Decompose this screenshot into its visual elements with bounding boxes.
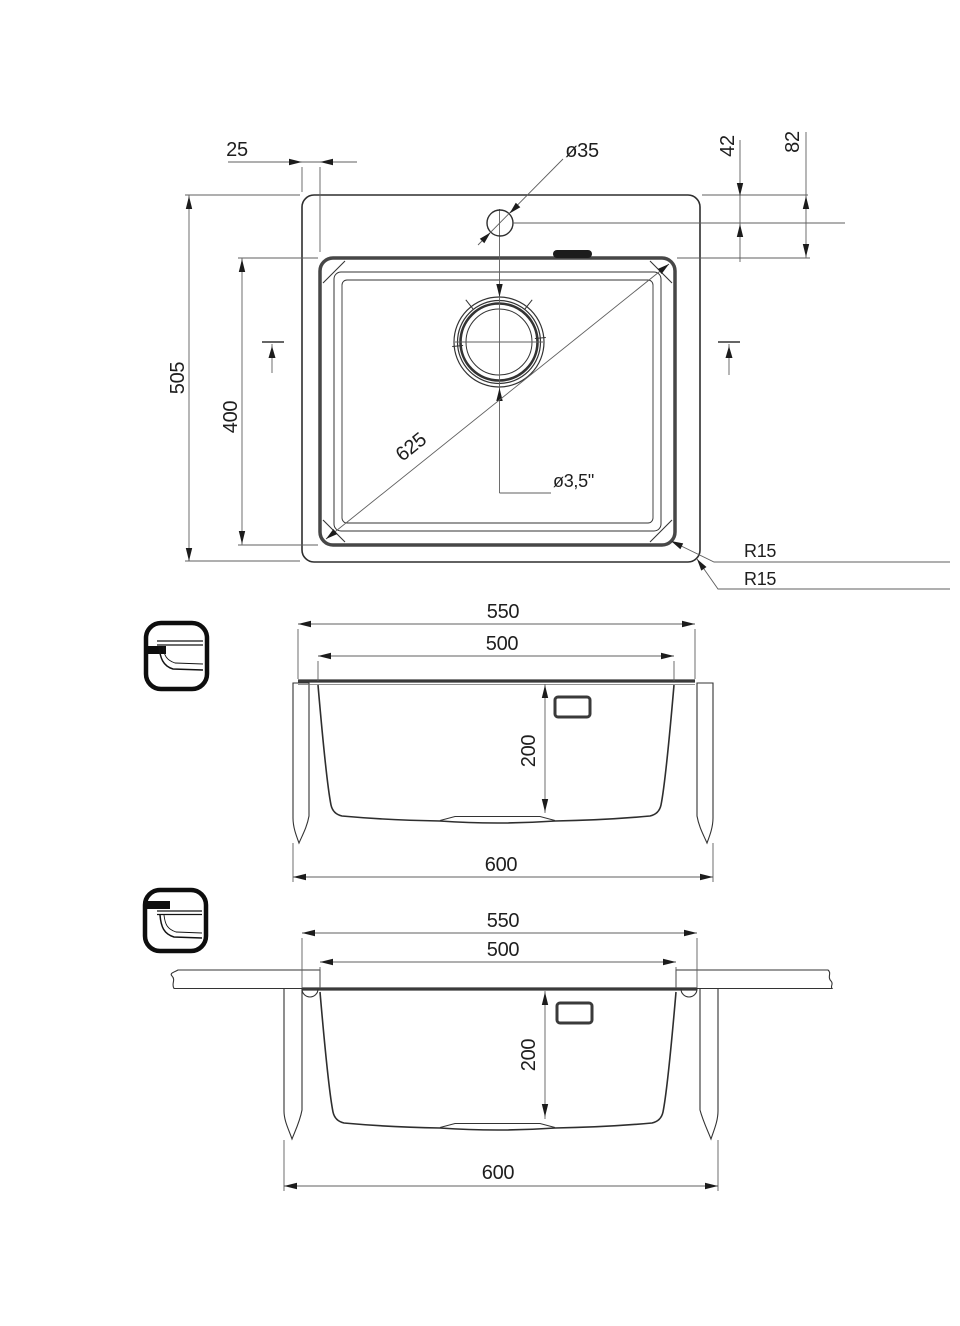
dim-overall-depth: 505 <box>167 195 300 561</box>
outer-corner-radius-label: R15 <box>744 569 776 589</box>
flush-inset-mount-icon <box>146 623 207 689</box>
bowl-corner-radius-label: R15 <box>744 541 776 561</box>
countertop-slab-right <box>676 970 832 989</box>
sink-profile-flush <box>298 681 695 823</box>
undermount-section: 550 500 200 600 <box>145 890 832 1191</box>
dim-bowl-width-flush: 500 <box>318 633 674 681</box>
section-marker-left <box>262 342 284 373</box>
cabinet-side-right <box>700 989 718 1140</box>
dim-rim-width-label: 25 <box>226 139 248 161</box>
plan-view: ø3,5" ø35 25 505 <box>167 131 950 589</box>
dim-bowl-depth: 400 <box>220 258 318 545</box>
dim-overall-width-under: 600 <box>284 1140 718 1191</box>
countertop-cut-right <box>697 683 713 843</box>
dim-bowl-width-under: 500 <box>320 939 676 988</box>
technical-drawing-page: ø3,5" ø35 25 505 <box>0 0 960 1326</box>
dim-depth-under: 200 <box>518 991 548 1119</box>
overflow-opening <box>555 697 590 717</box>
dim-200-label: 200 <box>518 1039 540 1072</box>
dim-600-label: 600 <box>482 1162 515 1184</box>
sink-technical-drawing: ø3,5" ø35 25 505 <box>0 0 960 1326</box>
dim-overall-width-flush: 600 <box>293 843 713 882</box>
dim-500-label: 500 <box>486 633 519 655</box>
overflow-opening <box>557 1003 592 1023</box>
countertop-slab-left <box>171 970 320 989</box>
dim-corner-radius-bowl: R15 <box>671 541 950 562</box>
dim-550-label: 550 <box>487 601 520 623</box>
faucet-hole-diameter-label: ø35 <box>565 140 599 162</box>
dim-600-label: 600 <box>485 854 518 876</box>
dim-550-label: 550 <box>487 910 520 932</box>
drain-recess <box>440 1124 555 1128</box>
dim-200-label: 200 <box>518 735 540 768</box>
flush-mount-section: 550 500 200 600 <box>146 601 713 882</box>
overflow-slot <box>553 250 592 258</box>
dim-diagonal-label: 625 <box>392 428 431 466</box>
dim-corner-radius-outer: R15 <box>697 559 950 589</box>
drain-diameter-label: ø3,5" <box>553 471 594 491</box>
dim-faucet-offset-label: 42 <box>717 135 739 157</box>
sink-profile-undermount <box>302 989 697 1130</box>
drain-recess <box>440 817 555 821</box>
sink-outer-edge <box>302 195 700 562</box>
dim-500-label: 500 <box>487 939 520 961</box>
countertop-cut-left <box>293 683 309 843</box>
dim-faucet-offset: 42 82 <box>513 131 845 262</box>
cabinet-side-left <box>284 989 302 1140</box>
dim-bowl-depth-label: 400 <box>220 401 242 434</box>
dim-depth-flush: 200 <box>518 684 548 813</box>
dim-edge-to-bowl-label: 82 <box>782 131 804 153</box>
undermount-icon <box>145 890 206 951</box>
faucet-hole-leader <box>478 159 563 245</box>
section-marker-right <box>718 342 740 375</box>
dim-diagonal: 625 <box>326 264 669 539</box>
dim-overall-depth-label: 505 <box>167 362 189 395</box>
